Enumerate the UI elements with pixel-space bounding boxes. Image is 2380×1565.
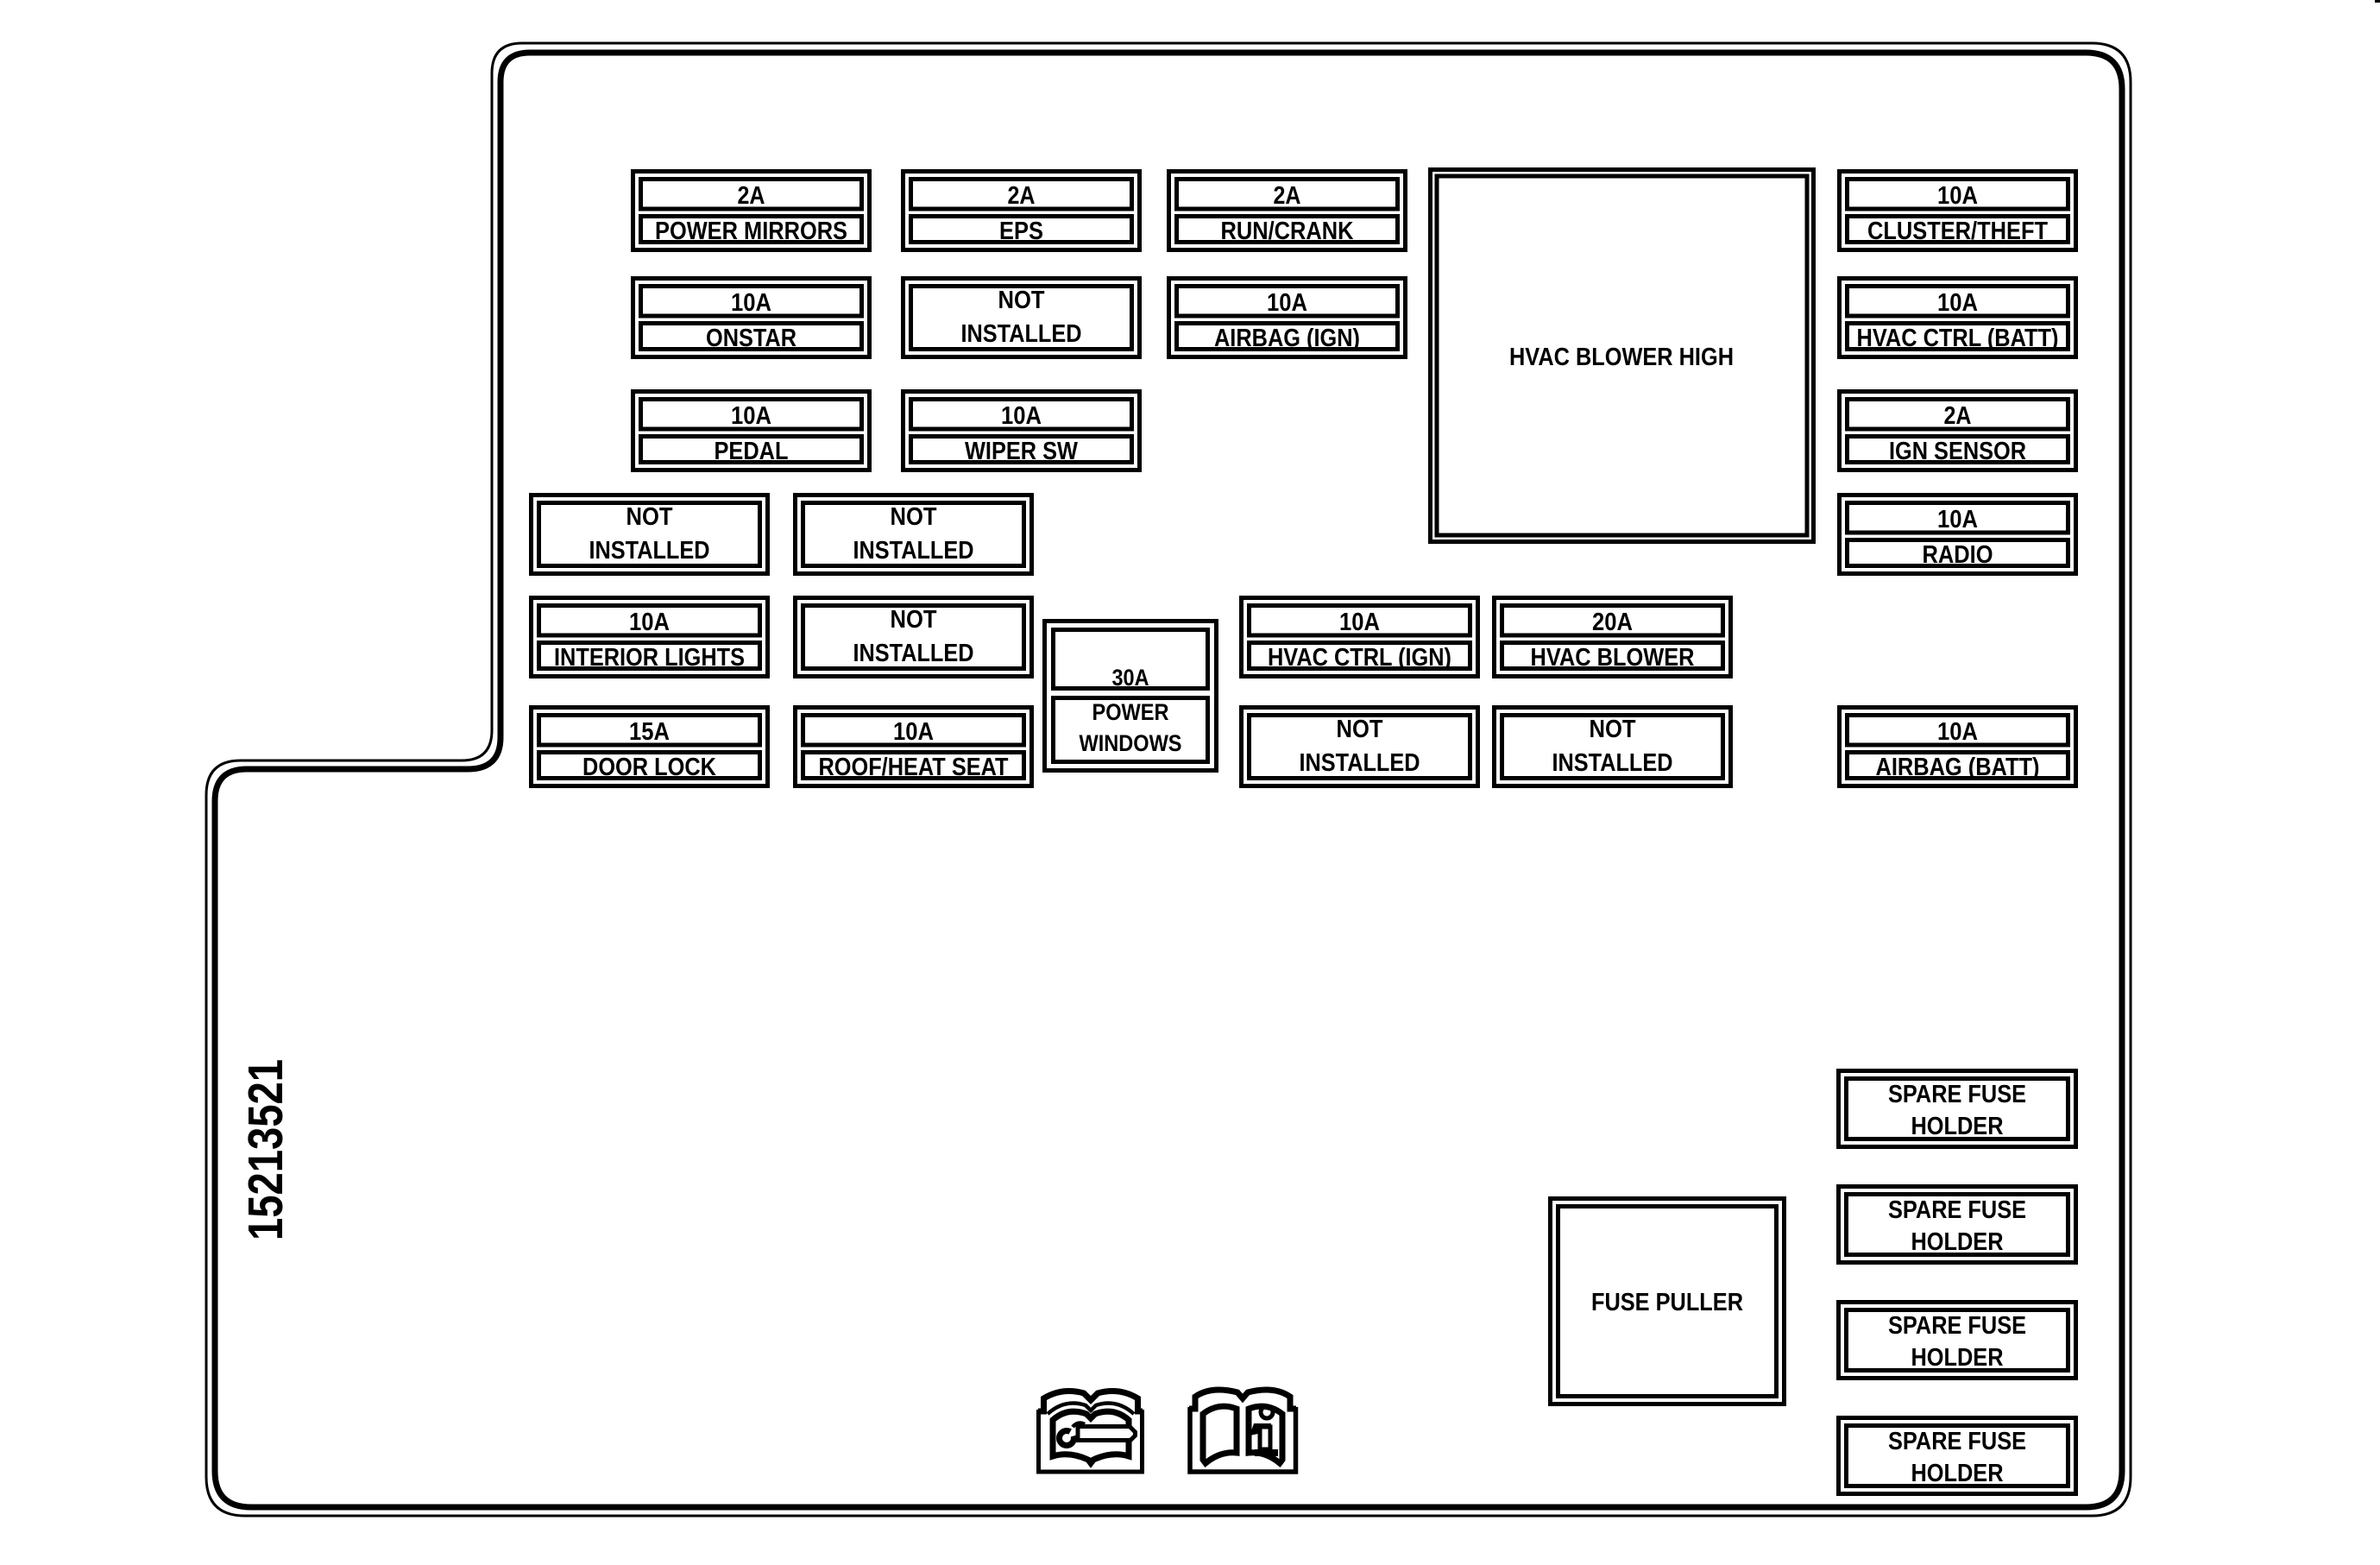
- svg-text:10A: 10A: [629, 609, 670, 636]
- svg-text:WIPER SW: WIPER SW: [965, 438, 1079, 465]
- svg-text:10A: 10A: [1267, 289, 1307, 317]
- svg-text:HOLDER: HOLDER: [1911, 1460, 2004, 1487]
- svg-text:PEDAL: PEDAL: [715, 438, 789, 465]
- svg-text:RADIO: RADIO: [1923, 541, 1993, 569]
- svg-text:2A: 2A: [1944, 402, 1972, 430]
- svg-text:POWER MIRRORS: POWER MIRRORS: [655, 218, 847, 245]
- svg-text:10A: 10A: [1937, 289, 1978, 317]
- svg-text:NOT: NOT: [1337, 716, 1383, 743]
- svg-text:FUSE PULLER: FUSE PULLER: [1591, 1289, 1743, 1316]
- svg-text:10A: 10A: [1937, 506, 1978, 533]
- svg-text:2A: 2A: [1274, 182, 1301, 210]
- svg-text:ONSTAR: ONSTAR: [706, 325, 796, 352]
- svg-text:SPARE FUSE: SPARE FUSE: [1888, 1428, 2026, 1455]
- svg-text:10A: 10A: [893, 718, 934, 746]
- svg-text:INSTALLED: INSTALLED: [961, 320, 1082, 348]
- svg-text:10A: 10A: [1339, 609, 1380, 636]
- svg-text:INSTALLED: INSTALLED: [1552, 749, 1673, 777]
- svg-text:HOLDER: HOLDER: [1911, 1344, 2004, 1372]
- svg-text:NOT: NOT: [1590, 716, 1636, 743]
- svg-text:2A: 2A: [1008, 182, 1036, 210]
- svg-text:15A: 15A: [629, 718, 670, 746]
- svg-text:HVAC CTRL (BATT): HVAC CTRL (BATT): [1857, 325, 2059, 352]
- svg-text:NOT: NOT: [891, 606, 937, 634]
- svg-text:INSTALLED: INSTALLED: [853, 537, 974, 565]
- svg-text:INTERIOR LIGHTS: INTERIOR LIGHTS: [554, 644, 745, 672]
- svg-text:NOT: NOT: [891, 503, 937, 531]
- svg-text:HOLDER: HOLDER: [1911, 1113, 2004, 1140]
- svg-text:NOT: NOT: [626, 503, 673, 531]
- svg-text:EPS: EPS: [999, 218, 1043, 245]
- svg-text:CLUSTER/THEFT: CLUSTER/THEFT: [1867, 218, 2048, 245]
- svg-text:WINDOWS: WINDOWS: [1080, 730, 1182, 756]
- svg-text:SPARE FUSE: SPARE FUSE: [1888, 1081, 2026, 1108]
- svg-text:10A: 10A: [1001, 402, 1042, 430]
- svg-text:ROOF/HEAT SEAT: ROOF/HEAT SEAT: [819, 754, 1009, 781]
- svg-text:SPARE FUSE: SPARE FUSE: [1888, 1312, 2026, 1340]
- svg-text:15213521: 15213521: [238, 1059, 293, 1240]
- svg-text:10A: 10A: [731, 289, 771, 317]
- svg-text:RUN/CRANK: RUN/CRANK: [1221, 218, 1354, 245]
- svg-text:NOT: NOT: [998, 287, 1045, 314]
- svg-text:10A: 10A: [1937, 718, 1978, 746]
- svg-text:POWER: POWER: [1092, 699, 1169, 725]
- svg-text:INSTALLED: INSTALLED: [1300, 749, 1420, 777]
- svg-text:HVAC BLOWER: HVAC BLOWER: [1531, 644, 1695, 672]
- svg-text:HVAC BLOWER HIGH: HVAC BLOWER HIGH: [1509, 344, 1734, 371]
- svg-text:10A: 10A: [1937, 182, 1978, 210]
- svg-text:20A: 20A: [1592, 609, 1633, 636]
- svg-text:2A: 2A: [738, 182, 765, 210]
- svg-text:HOLDER: HOLDER: [1911, 1228, 2004, 1256]
- svg-text:INSTALLED: INSTALLED: [853, 640, 974, 667]
- svg-text:10A: 10A: [731, 402, 771, 430]
- svg-text:AIRBAG (IGN): AIRBAG (IGN): [1214, 325, 1360, 352]
- svg-text:HVAC CTRL (IGN): HVAC CTRL (IGN): [1268, 644, 1451, 672]
- svg-text:30A: 30A: [1112, 665, 1149, 691]
- svg-text:INSTALLED: INSTALLED: [589, 537, 710, 565]
- svg-text:AIRBAG (BATT): AIRBAG (BATT): [1876, 754, 2040, 781]
- svg-text:IGN SENSOR: IGN SENSOR: [1889, 438, 2026, 465]
- svg-text:SPARE FUSE: SPARE FUSE: [1888, 1196, 2026, 1224]
- svg-text:DOOR LOCK: DOOR LOCK: [582, 754, 716, 781]
